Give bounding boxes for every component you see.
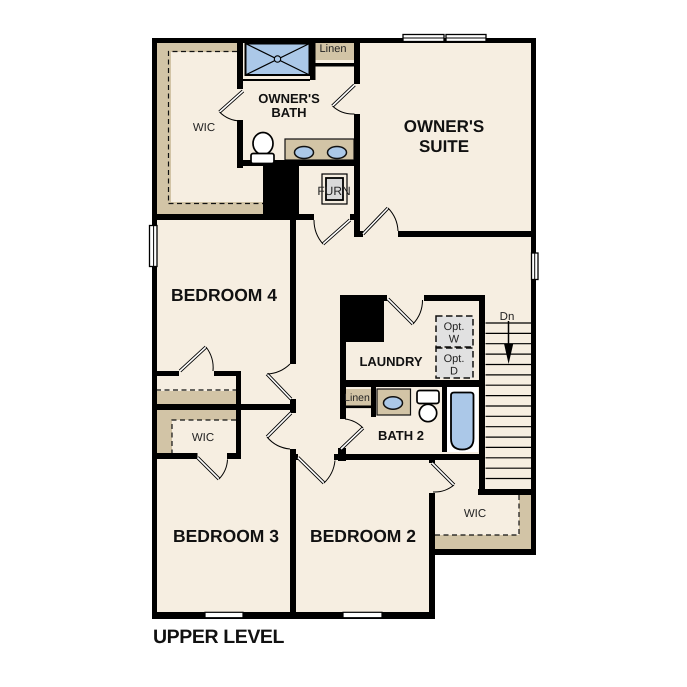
svg-text:Opt.: Opt. xyxy=(444,353,465,365)
svg-text:UPPER LEVEL: UPPER LEVEL xyxy=(153,626,285,648)
svg-text:Linen: Linen xyxy=(320,43,347,55)
svg-text:BATH: BATH xyxy=(271,105,306,120)
svg-text:W: W xyxy=(449,334,460,346)
svg-text:BATH 2: BATH 2 xyxy=(378,428,424,443)
svg-text:LAUNDRY: LAUNDRY xyxy=(359,354,422,369)
svg-text:BEDROOM 2: BEDROOM 2 xyxy=(310,526,416,546)
svg-text:FURN: FURN xyxy=(317,184,350,198)
svg-text:D: D xyxy=(450,366,458,378)
svg-text:WIC: WIC xyxy=(193,122,215,134)
svg-text:BEDROOM 4: BEDROOM 4 xyxy=(171,285,277,305)
svg-text:WIC: WIC xyxy=(464,508,486,520)
svg-text:OWNER'S: OWNER'S xyxy=(404,117,485,136)
svg-text:Linen: Linen xyxy=(344,392,370,404)
svg-text:Opt.: Opt. xyxy=(444,321,465,333)
svg-text:OWNER'S: OWNER'S xyxy=(258,91,320,106)
svg-text:Dn: Dn xyxy=(500,311,515,323)
svg-text:WIC: WIC xyxy=(192,432,214,444)
svg-text:BEDROOM 3: BEDROOM 3 xyxy=(173,526,279,546)
svg-text:SUITE: SUITE xyxy=(419,137,469,156)
